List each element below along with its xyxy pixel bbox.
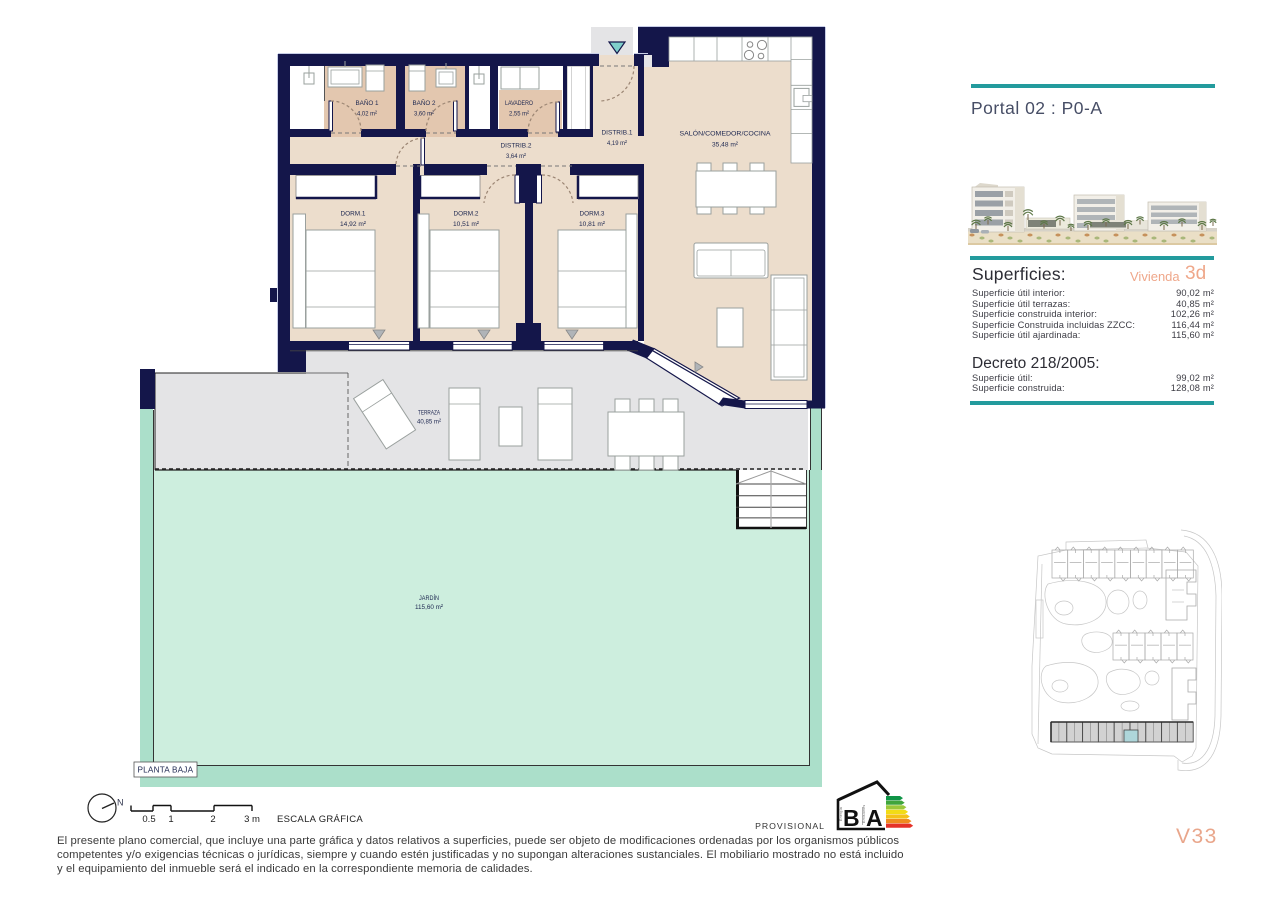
svg-text:3 m: 3 m — [244, 814, 260, 825]
svg-text:DORM.1: DORM.1 — [341, 211, 366, 218]
svg-text:TERRAZA: TERRAZA — [418, 410, 440, 417]
svg-text:A: A — [866, 805, 883, 831]
svg-text:2: 2 — [210, 814, 215, 825]
svg-text:DISTRIB.2: DISTRIB.2 — [501, 143, 532, 150]
svg-text:SALÓN/COMEDOR/COCINA: SALÓN/COMEDOR/COCINA — [680, 129, 771, 138]
svg-text:B: B — [843, 805, 860, 831]
svg-text:14,92 m²: 14,92 m² — [340, 221, 367, 228]
svg-text:ESCALA GRÁFICA: ESCALA GRÁFICA — [277, 814, 363, 825]
svg-text:BAÑO 2: BAÑO 2 — [413, 98, 436, 107]
svg-text:N: N — [117, 798, 124, 808]
svg-text:115,60 m²: 115,60 m² — [415, 604, 444, 611]
svg-text:JARDÍN: JARDÍN — [419, 593, 439, 602]
svg-text:LAVADERO: LAVADERO — [505, 100, 533, 107]
svg-text:10,51 m²: 10,51 m² — [453, 221, 480, 228]
svg-text:40,85 m²: 40,85 m² — [417, 419, 442, 426]
svg-text:4,02 m²: 4,02 m² — [357, 111, 378, 118]
svg-text:2,55 m²: 2,55 m² — [509, 111, 530, 118]
svg-text:DORM.2: DORM.2 — [454, 211, 479, 218]
svg-text:10,81 m²: 10,81 m² — [579, 221, 606, 228]
svg-text:DORM.3: DORM.3 — [580, 211, 605, 218]
svg-text:BAÑO 1: BAÑO 1 — [356, 98, 379, 107]
svg-text:PLANTA BAJA: PLANTA BAJA — [138, 766, 194, 775]
svg-text:4,19 m²: 4,19 m² — [607, 140, 628, 147]
svg-text:DISTRIB.1: DISTRIB.1 — [602, 130, 633, 137]
svg-text:1: 1 — [168, 814, 173, 825]
svg-text:Emisiones: Emisiones — [862, 805, 866, 823]
svg-text:3,60 m²: 3,60 m² — [414, 111, 435, 118]
svg-text:Energía: Energía — [839, 807, 843, 821]
svg-text:3,64 m²: 3,64 m² — [506, 153, 527, 160]
svg-text:0.5: 0.5 — [142, 814, 155, 825]
svg-text:35,48 m²: 35,48 m² — [712, 142, 739, 149]
